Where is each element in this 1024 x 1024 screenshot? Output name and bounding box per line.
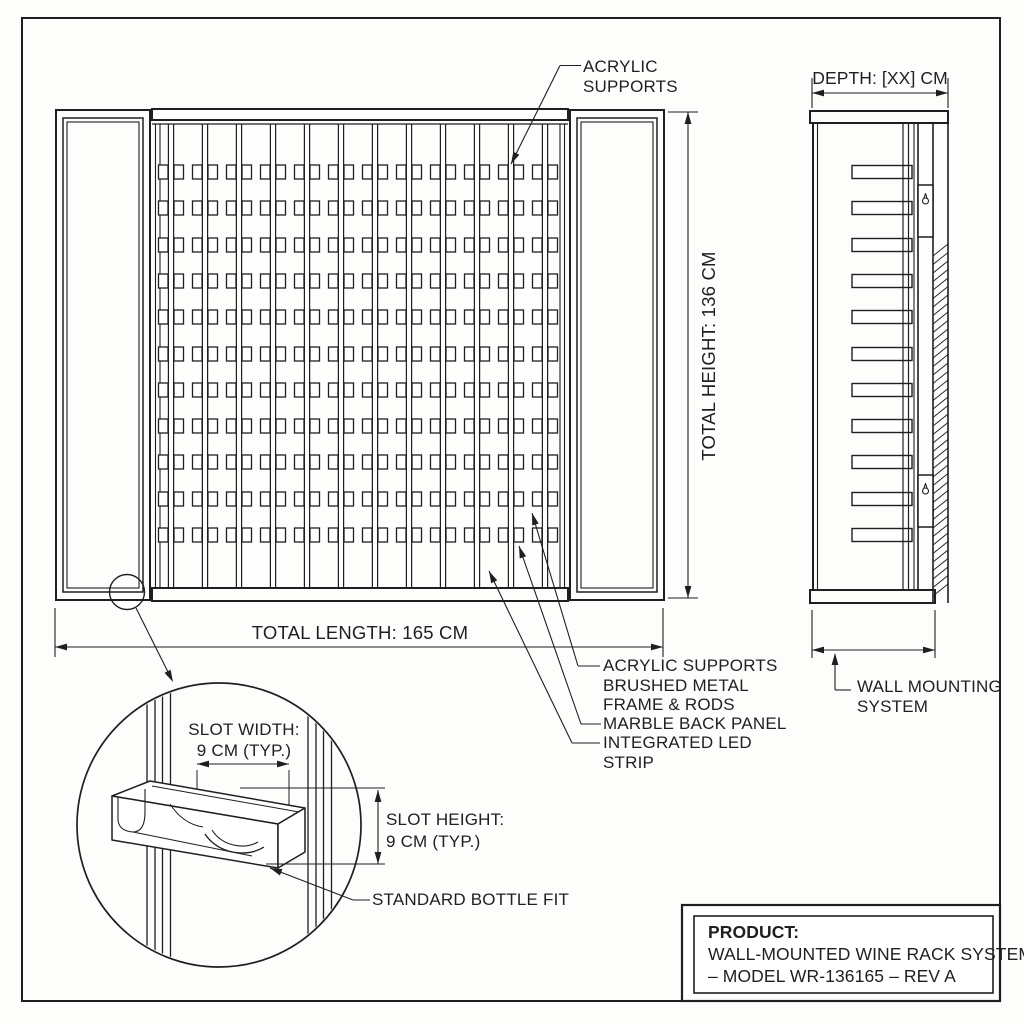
dimension-lines [55, 78, 948, 864]
title-block-model-revision: – MODEL WR-136165 – REV A [708, 966, 956, 986]
callout-brushed-metal-line1: BRUSHED METAL [603, 676, 749, 695]
wine-rack-technical-drawing: ACRYLIC SUPPORTS DEPTH: [XX] CM TOTAL HE… [0, 0, 1024, 1024]
depth-dimension-text: DEPTH: [XX] CM [812, 68, 948, 88]
slot-width-value: 9 CM (TYP.) [197, 741, 291, 760]
total-height-dimension-text: TOTAL HEIGHT: 136 CM [698, 251, 719, 460]
callout-integrated-led-line1: INTEGRATED LED [603, 733, 752, 752]
slot-height-value: 9 CM (TYP.) [386, 832, 480, 851]
callout-integrated-led-line2: STRIP [603, 753, 654, 772]
callout-marble-back-panel: MARBLE BACK PANEL [603, 714, 787, 733]
title-block-product-name: WALL-MOUNTED WINE RACK SYSTEM [708, 944, 1024, 964]
drawing-sheet: ACRYLIC SUPPORTS DEPTH: [XX] CM TOTAL HE… [0, 0, 1024, 1024]
side-view-section [810, 111, 948, 603]
total-length-dimension-text: TOTAL LENGTH: 165 CM [252, 622, 468, 643]
callout-leader-lines [136, 66, 851, 901]
title-block-product-heading: PRODUCT: [708, 922, 799, 942]
wall-mounting-label-line2: SYSTEM [857, 697, 928, 716]
slot-height-label: SLOT HEIGHT: [386, 810, 504, 829]
acrylic-supports-top-label-line1: ACRYLIC [583, 57, 658, 76]
acrylic-supports-top-label-line2: SUPPORTS [583, 77, 678, 96]
standard-bottle-fit-label: STANDARD BOTTLE FIT [372, 890, 569, 909]
callout-brushed-metal-line2: FRAME & RODS [603, 695, 735, 714]
slot-width-label: SLOT WIDTH: [188, 720, 299, 739]
wall-mounting-label-line1: WALL MOUNTING [857, 677, 1002, 696]
callout-acrylic-supports: ACRYLIC SUPPORTS [603, 656, 778, 675]
front-view-elevation [56, 109, 664, 610]
